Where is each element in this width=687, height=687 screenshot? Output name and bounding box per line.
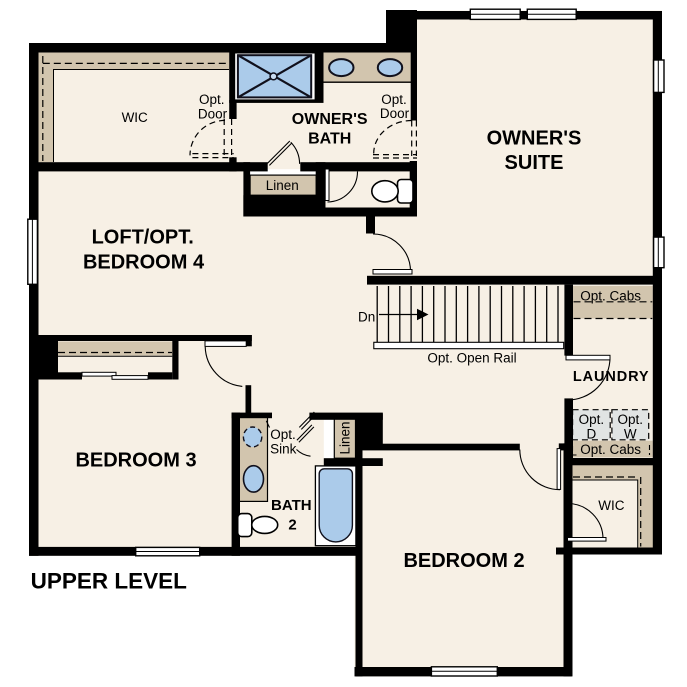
svg-text:Opt.: Opt. [381,92,407,107]
svg-text:OWNER'S: OWNER'S [292,111,368,128]
svg-text:2: 2 [288,517,296,534]
svg-text:BATH: BATH [271,497,312,514]
svg-text:Opt.: Opt. [270,427,296,442]
svg-text:Opt. Cabs: Opt. Cabs [580,442,641,457]
svg-text:Opt. Open Rail: Opt. Open Rail [427,350,516,365]
svg-text:Linen: Linen [337,421,352,454]
svg-text:BEDROOM 2: BEDROOM 2 [403,550,524,572]
svg-text:Door: Door [380,106,410,121]
svg-text:BEDROOM 4: BEDROOM 4 [83,251,205,273]
svg-text:LAUNDRY: LAUNDRY [573,369,650,385]
svg-text:LOFT/OPT.: LOFT/OPT. [92,227,194,249]
svg-text:WIC: WIC [598,498,624,513]
svg-text:UPPER LEVEL: UPPER LEVEL [31,569,188,594]
svg-text:SUITE: SUITE [505,152,564,174]
svg-text:Linen: Linen [266,178,299,193]
svg-text:Opt.: Opt. [199,92,225,107]
svg-text:BATH: BATH [308,130,351,147]
svg-text:Door: Door [198,106,228,121]
svg-text:Opt.: Opt. [579,412,605,427]
svg-text:BEDROOM 3: BEDROOM 3 [75,450,196,472]
svg-text:Sink: Sink [270,442,297,457]
svg-text:OWNER'S: OWNER'S [487,128,582,150]
svg-text:W: W [624,427,637,442]
svg-text:Opt.: Opt. [618,412,644,427]
svg-text:Dn: Dn [358,310,375,325]
svg-text:Opt. Cabs: Opt. Cabs [580,288,641,303]
svg-text:WIC: WIC [122,110,148,125]
svg-text:D: D [587,427,597,442]
